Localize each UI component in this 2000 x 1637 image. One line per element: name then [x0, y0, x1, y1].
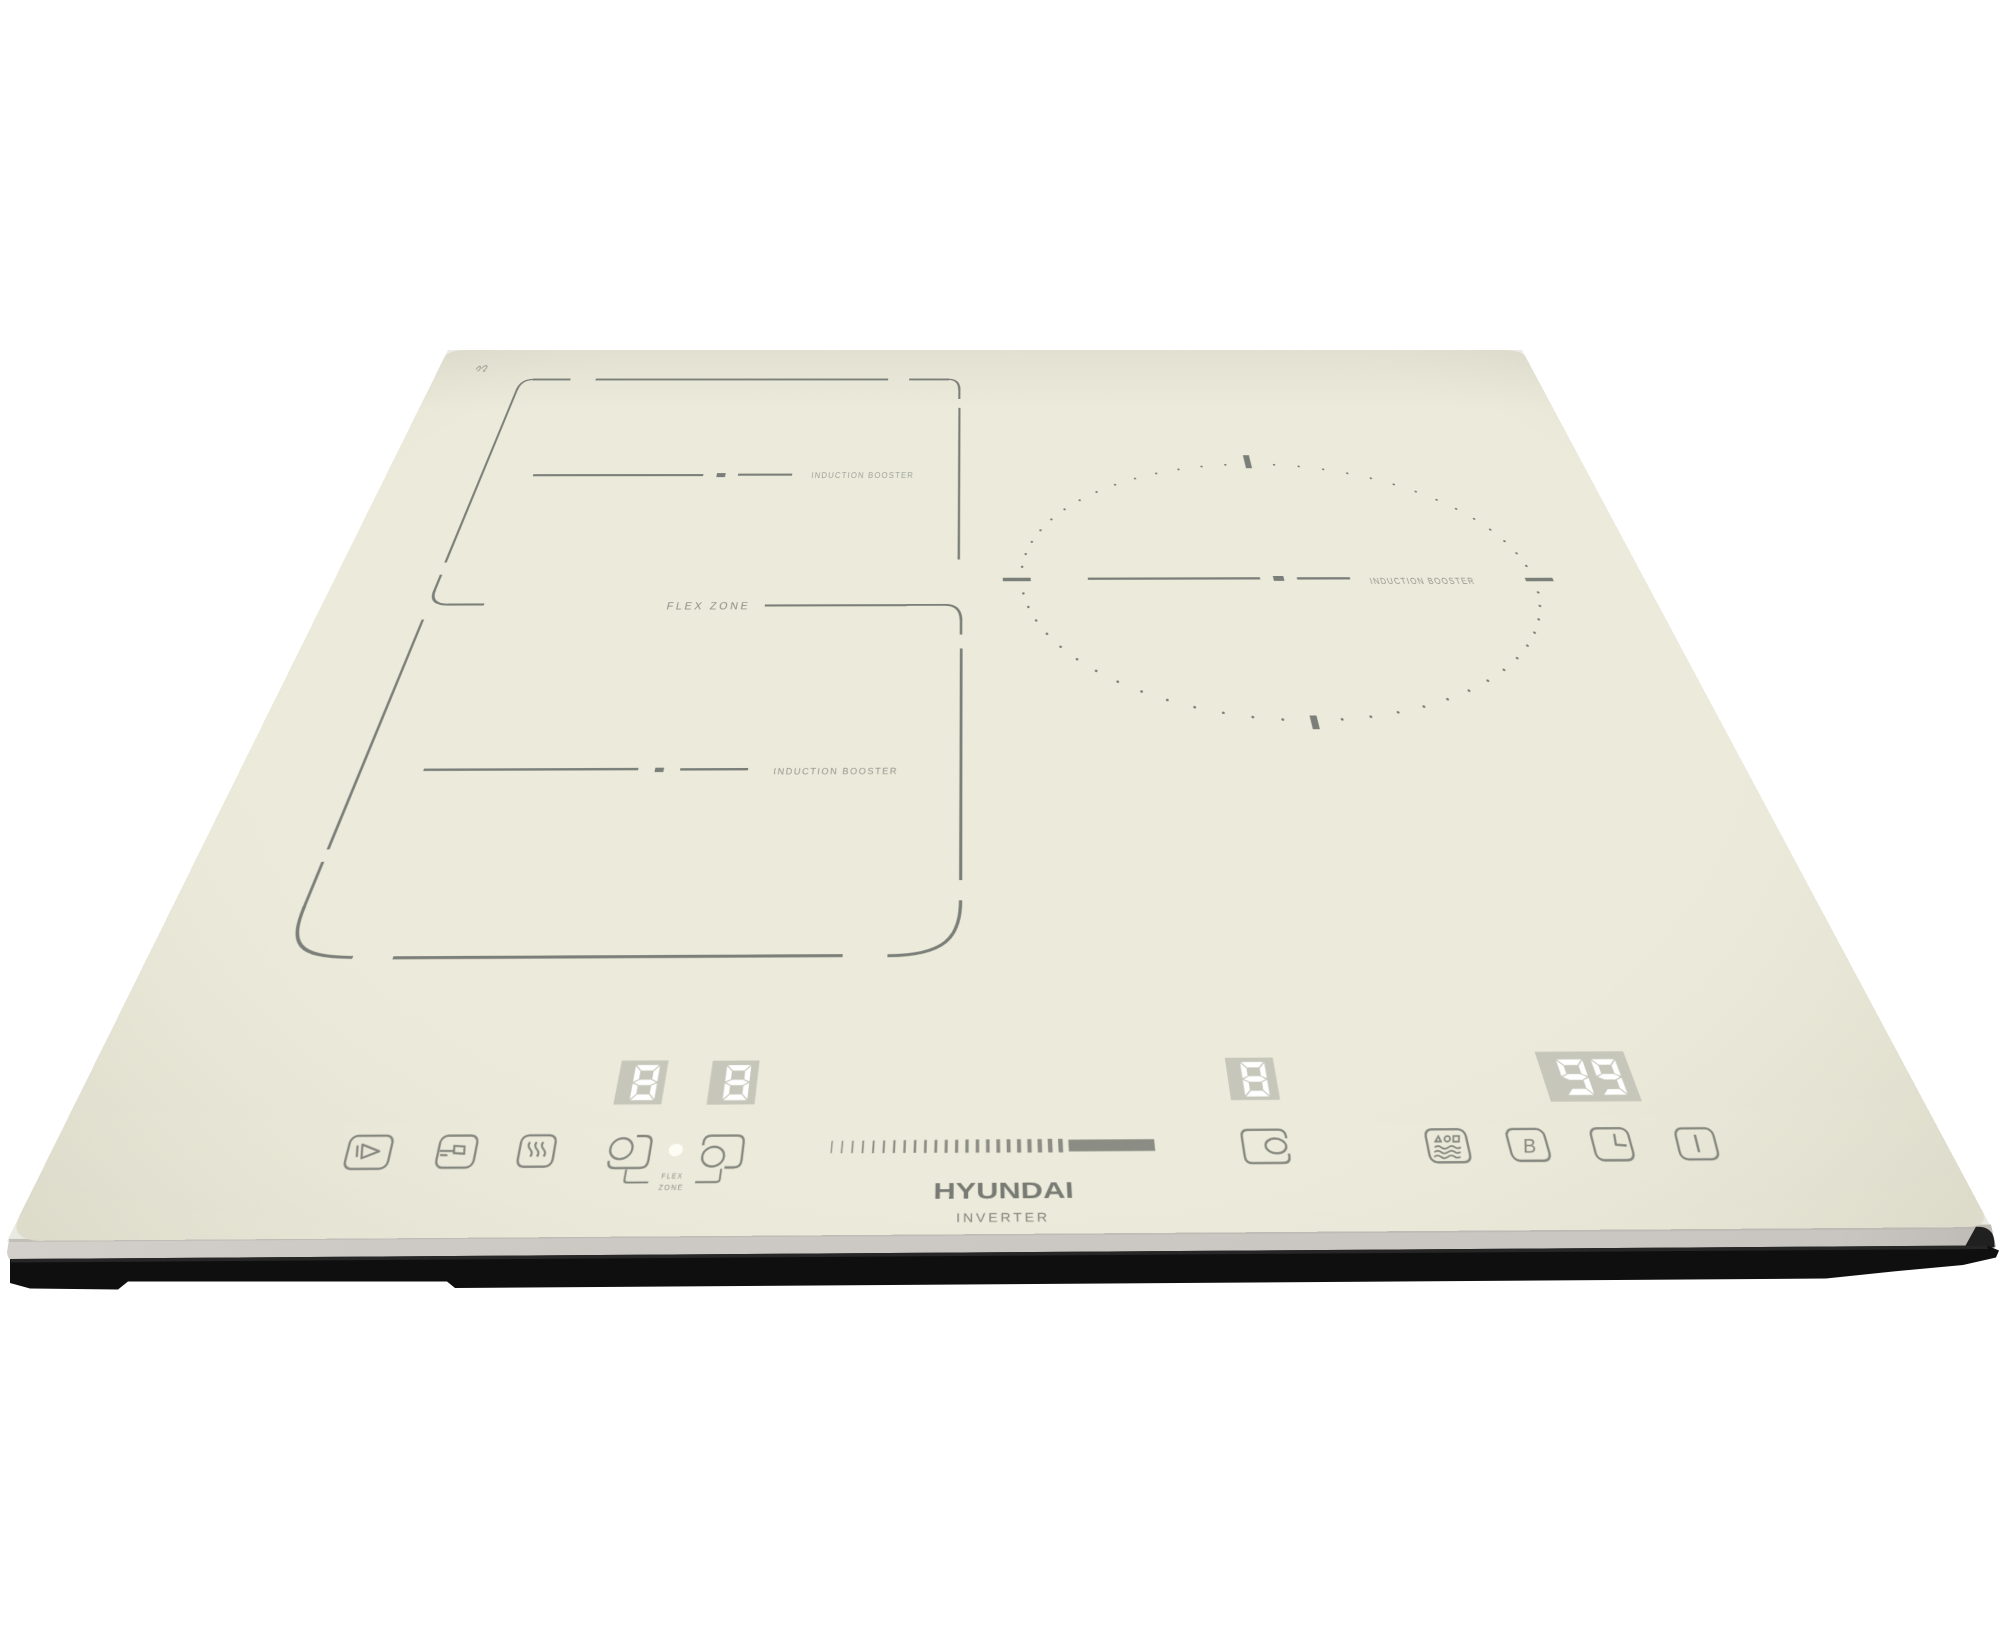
svg-text:B: B [1523, 1136, 1537, 1158]
svg-text:FLEX ZONE: FLEX ZONE [665, 600, 751, 612]
svg-text:INVERTER: INVERTER [956, 1213, 1050, 1227]
svg-text:INDUCTION BOOSTER: INDUCTION BOOSTER [1369, 578, 1477, 587]
svg-text:HYUNDAI: HYUNDAI [933, 1179, 1074, 1206]
svg-text:ZONE: ZONE [658, 1183, 685, 1192]
svg-text:INDUCTION BOOSTER: INDUCTION BOOSTER [811, 470, 915, 480]
svg-text:FLEX: FLEX [661, 1172, 684, 1181]
svg-text:INDUCTION BOOSTER: INDUCTION BOOSTER [773, 768, 899, 778]
